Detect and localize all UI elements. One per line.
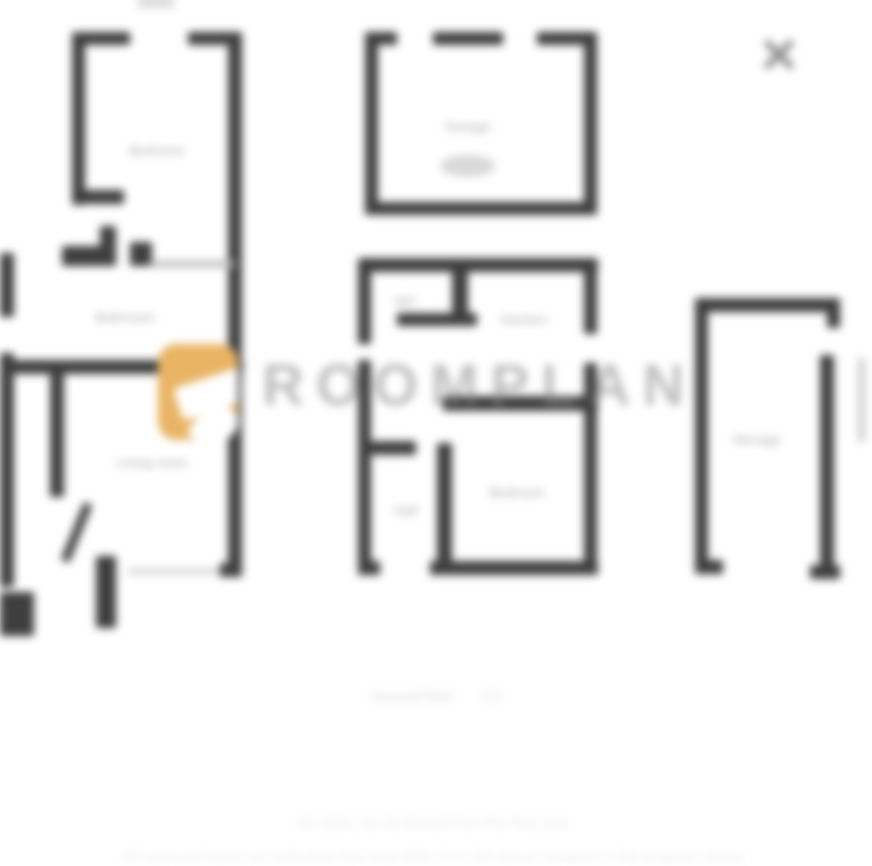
door-swing xyxy=(61,502,93,563)
room-label-bedroom-a: Bedroom xyxy=(107,143,207,158)
wall-segment xyxy=(820,355,834,569)
wall-segment xyxy=(695,298,840,312)
watermark-remnant xyxy=(858,358,865,442)
wall-segment xyxy=(433,32,503,45)
room-label-garage: Garage xyxy=(418,119,518,134)
wall-segment xyxy=(371,441,416,455)
wall-segment xyxy=(452,258,468,324)
wall-segment xyxy=(50,373,64,497)
wall-segment xyxy=(358,258,598,272)
door-mark xyxy=(62,246,102,266)
room-label-living-room: Living room xyxy=(102,455,202,470)
wall-segment xyxy=(228,32,242,577)
room-label-kitchen: Kitchen xyxy=(474,312,574,327)
floorplan-viewer: Bedroom Bathroom Living room Garage WC K… xyxy=(0,0,872,864)
entrance-mark xyxy=(0,592,34,636)
caption-page-indicator: 1/2 xyxy=(480,688,501,705)
watermark-text: ROOMPLAN xyxy=(262,352,742,419)
disclaimer-line-1: No rights can be derived from this floor… xyxy=(0,814,872,830)
door-threshold xyxy=(150,261,235,267)
label-smudge xyxy=(440,155,495,177)
wall-segment xyxy=(430,561,598,575)
wall-segment xyxy=(72,190,124,204)
disclaimer-line-2: All measurements are indicative and may … xyxy=(0,849,872,866)
caption-floor-label: Ground floor xyxy=(371,688,454,705)
wall-segment xyxy=(810,565,840,579)
wall-segment xyxy=(584,258,597,334)
wall-segment xyxy=(695,560,723,574)
cropped-mark xyxy=(138,0,174,8)
wall-segment xyxy=(365,202,597,215)
room-label-wc: WC xyxy=(356,294,456,309)
door-mark xyxy=(130,242,152,266)
room-label-storage: Storage xyxy=(707,432,807,447)
room-label-hall: Hall xyxy=(356,503,456,518)
wall-segment xyxy=(827,298,840,328)
room-label-bathroom: Bathroom xyxy=(75,310,175,325)
wall-segment xyxy=(358,561,380,575)
wall-segment xyxy=(365,32,378,215)
wall-segment xyxy=(0,253,14,317)
wall-segment xyxy=(584,32,597,215)
wall-segment xyxy=(220,563,242,577)
door-mark xyxy=(100,226,116,266)
wall-segment xyxy=(96,556,116,628)
wall-segment xyxy=(0,353,14,587)
close-button[interactable] xyxy=(752,27,806,81)
watermark-logo-pin-icon xyxy=(158,344,238,440)
wall-segment xyxy=(72,32,85,205)
door-threshold xyxy=(128,569,220,574)
floorplan-caption: Ground floor 1/2 xyxy=(0,688,872,705)
room-label-bedroom-b: Bedroom xyxy=(467,485,567,500)
